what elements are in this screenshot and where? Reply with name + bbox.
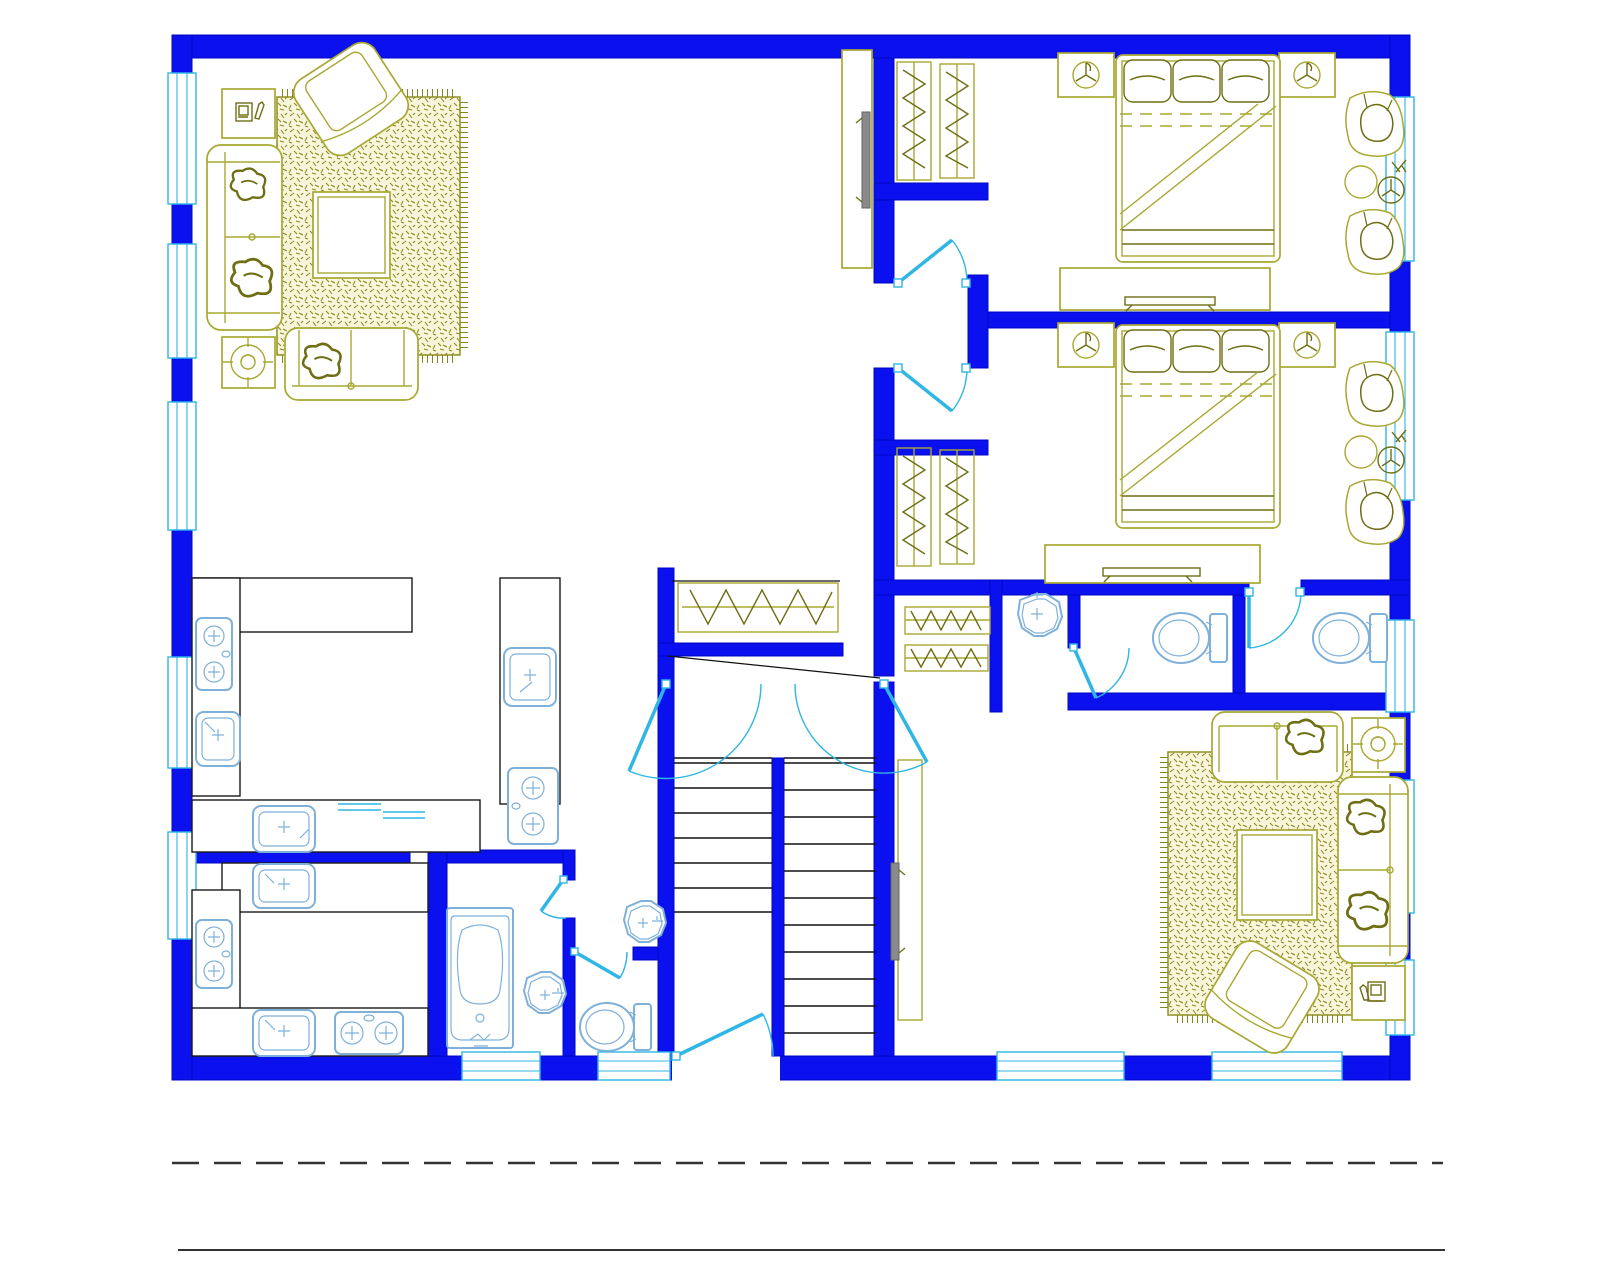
cooktop: [196, 618, 232, 690]
lounge-chair: [1346, 210, 1404, 275]
loveseat: [285, 328, 418, 400]
cooktop: [196, 920, 232, 988]
window: [598, 1052, 670, 1080]
tv-cabinet: [842, 50, 872, 268]
hanging-rail: [905, 645, 988, 671]
hall-closet: [668, 581, 880, 678]
kitchen-sink: [253, 1010, 315, 1056]
closet-door-line: [668, 656, 880, 678]
nightstand: [1279, 323, 1335, 367]
kitchen-sink: [196, 712, 240, 766]
entry-door-opening: [672, 1052, 780, 1084]
toilet: [580, 1003, 651, 1051]
telephone-table: [1352, 966, 1405, 1020]
window: [168, 73, 196, 204]
dresser: [1060, 268, 1270, 311]
fan-table: [222, 337, 275, 388]
bedroom-set: [1058, 53, 1406, 274]
double-bed: [1116, 325, 1280, 528]
small-closet: [905, 607, 990, 671]
closet-rails: [897, 62, 974, 180]
site-lines: [172, 1163, 1445, 1250]
hanging-rail: [905, 607, 990, 634]
tv-screen: [891, 863, 899, 960]
lounge-chair: [1346, 480, 1404, 545]
swing-door: [1070, 644, 1129, 698]
coffee-table: [313, 192, 390, 278]
telephone-table: [222, 89, 275, 138]
window: [997, 1052, 1124, 1080]
wash-basin: [1018, 592, 1062, 636]
sofa: [1338, 777, 1408, 963]
pillows: [1124, 60, 1269, 102]
window: [462, 1052, 540, 1080]
cooktop: [335, 1012, 403, 1054]
lounge-chair: [1346, 92, 1404, 157]
loveseat: [1212, 712, 1343, 782]
swing-door: [894, 240, 970, 287]
coffee-table: [1237, 830, 1317, 920]
kitchen-sink: [253, 864, 315, 908]
nightstand: [1058, 323, 1114, 367]
sofa: [207, 145, 282, 330]
toilet: [1313, 613, 1387, 663]
swing-door: [894, 364, 970, 411]
fan-table: [1352, 718, 1405, 772]
hanging-rail: [940, 450, 974, 564]
kitchen-sink: [253, 806, 315, 852]
double-door-right: [795, 680, 927, 773]
swing-door: [541, 876, 567, 918]
hanging-rail: [897, 448, 931, 566]
tv-console: [891, 760, 922, 1020]
bathtub: [447, 908, 513, 1048]
swing-door: [1245, 588, 1304, 648]
floor-plan-canvas: [0, 0, 1600, 1280]
wash-basin: [524, 972, 566, 1013]
hanging-rail: [897, 62, 931, 180]
tv-screen: [862, 112, 870, 208]
double-bed: [1116, 55, 1280, 262]
living-room-bottom-right: [891, 712, 1408, 1059]
swing-door: [571, 948, 627, 978]
kitchen-sink: [504, 648, 556, 706]
dresser: [1045, 545, 1260, 583]
wash-basin: [624, 901, 666, 942]
nightstand: [1279, 53, 1335, 97]
closet-rails: [897, 448, 974, 566]
lounge-chair: [1346, 362, 1404, 427]
cooktop: [508, 768, 558, 844]
window: [168, 402, 196, 530]
bedroom-1: [897, 53, 1406, 311]
living-room-top-left: [207, 37, 872, 400]
toilet: [1153, 613, 1227, 663]
floor-plan-drawing: [0, 0, 1600, 1280]
window: [168, 244, 196, 358]
hanging-rail: [940, 64, 974, 178]
nightstand: [1058, 53, 1114, 97]
window: [1212, 1052, 1342, 1080]
pillows: [1124, 330, 1269, 372]
window: [1386, 620, 1414, 712]
